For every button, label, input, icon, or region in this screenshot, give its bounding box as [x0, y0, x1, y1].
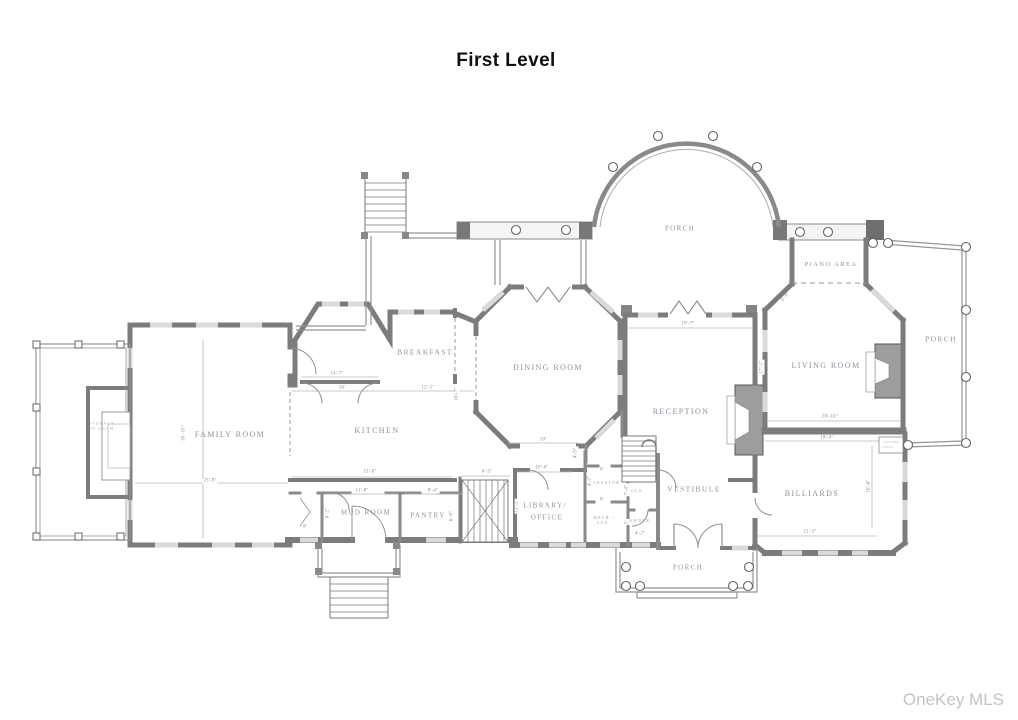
- dim-label: 7'-4": [625, 484, 630, 497]
- dim-label: 6'-2": [326, 507, 331, 520]
- dim-label: 16': [338, 386, 347, 391]
- label-porch-top: PORCH: [665, 226, 695, 233]
- dim-label: 21'-3": [802, 530, 817, 535]
- dim-label: 12'-1": [515, 498, 520, 513]
- label-piano-area: PIANO AREA: [805, 262, 858, 269]
- dim-label: 8': [599, 498, 605, 503]
- label-library-line1: LIBRARY/: [523, 503, 566, 510]
- label-storage-line2: IN ROOM: [90, 427, 115, 431]
- dim-label: 19'-7": [680, 322, 695, 327]
- label-living-room: LIVING ROOM: [792, 362, 861, 370]
- dim-label: 30'-10": [182, 424, 187, 442]
- label-clo: CLO: [631, 490, 643, 494]
- label-kitchen: KITCHEN: [355, 427, 400, 435]
- dim-label: 11'-8": [354, 489, 369, 494]
- label-porch-right: PORCH: [925, 335, 957, 343]
- label-billiards: BILLIARDS: [785, 490, 839, 498]
- label-family-room: FAMILY ROOM: [195, 431, 265, 439]
- floor-plan-page: First Level: [0, 0, 1018, 720]
- watermark: OneKey MLS: [903, 690, 1004, 710]
- dim-label: 4'-9": [574, 447, 579, 460]
- dim-label: 4'-2": [634, 532, 647, 537]
- firebox-details: [102, 352, 903, 480]
- dim-label: 23'-9": [202, 479, 217, 484]
- label-vestibule: VESTIBULE: [667, 485, 720, 493]
- dim-label: 4'-2": [588, 475, 593, 488]
- dim-label: 6'-3": [481, 470, 494, 475]
- label-pantry: PANTRY: [410, 513, 445, 520]
- dim-label: 8': [302, 525, 308, 530]
- dim-label: 8'-4": [427, 489, 440, 494]
- dim-label: 21'-8": [362, 470, 377, 475]
- dim-label: 16'-6": [867, 478, 872, 493]
- dim-label: 10'-6": [534, 466, 549, 471]
- dim-label: 5': [625, 519, 630, 525]
- dim-label: 16'-7": [455, 386, 460, 401]
- dim-label: 10': [539, 438, 548, 443]
- floor-plan-drawing: [0, 0, 1018, 720]
- label-mud-room: MUD ROOM: [341, 510, 391, 517]
- label-storage-line1: STORAGE: [89, 422, 115, 426]
- dim-label: 6'-8": [450, 510, 455, 523]
- label-dining-room: DINING ROOM: [513, 364, 583, 372]
- dim-label: 8': [599, 468, 605, 473]
- dim-label: 17'-1": [760, 359, 765, 374]
- dim-label: 12'-1": [420, 386, 435, 391]
- label-reception: RECEPTION: [653, 408, 710, 416]
- label-elevator: ELEVATOR: [590, 482, 620, 486]
- label-mech-line2: CLO.: [597, 522, 611, 526]
- label-porch-bottom: PORCH: [673, 565, 703, 572]
- label-breakfast: BREAKFAST: [397, 348, 453, 356]
- label-library-line2: OFFICE: [531, 515, 564, 522]
- dim-label: 14'-7": [329, 372, 344, 377]
- porch-arc: [594, 144, 779, 227]
- dim-label: 20'-10": [821, 415, 839, 420]
- dim-label: 18'-4": [819, 436, 834, 441]
